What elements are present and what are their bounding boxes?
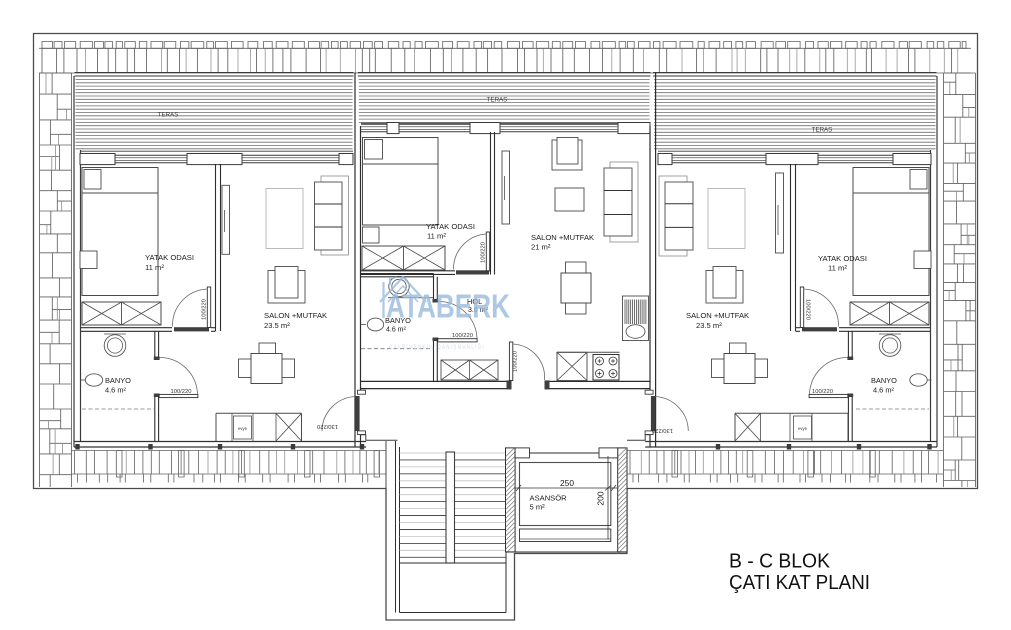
svg-text:SALON +MUTFAK: SALON +MUTFAK — [264, 311, 327, 320]
svg-text:YATAK ODASI: YATAK ODASI — [145, 253, 194, 262]
svg-text:100/220: 100/220 — [452, 333, 473, 339]
svg-text:SALON +MUTFAK: SALON +MUTFAK — [531, 233, 594, 242]
svg-text:4.6 m²: 4.6 m² — [105, 386, 126, 395]
svg-text:4.6 m²: 4.6 m² — [873, 386, 894, 395]
svg-text:ASANSÖR: ASANSÖR — [530, 494, 568, 503]
svg-text:BANYO: BANYO — [871, 376, 897, 385]
svg-text:BANYO: BANYO — [105, 376, 131, 385]
svg-text:130/220: 130/220 — [317, 423, 338, 429]
svg-text:23.5 m²: 23.5 m² — [696, 321, 722, 330]
svg-text:130/220: 130/220 — [652, 427, 673, 433]
svg-text:100/220: 100/220 — [202, 299, 208, 320]
svg-text:YATAK ODASI: YATAK ODASI — [818, 254, 867, 263]
svg-text:100/220: 100/220 — [481, 242, 487, 263]
svg-text:SALON +MUTFAK: SALON +MUTFAK — [686, 311, 749, 320]
svg-text:200: 200 — [596, 491, 606, 505]
svg-text:100/220: 100/220 — [171, 389, 192, 395]
svg-text:100/220: 100/220 — [812, 389, 833, 395]
svg-text:evye: evye — [798, 426, 808, 431]
svg-text:11 m²: 11 m² — [828, 264, 847, 273]
svg-text:evye: evye — [238, 426, 248, 431]
svg-text:5 m²: 5 m² — [530, 503, 546, 512]
svg-text:TERAS: TERAS — [812, 127, 833, 134]
svg-text:4.6 m²: 4.6 m² — [386, 327, 407, 334]
svg-text:100/220: 100/220 — [805, 299, 811, 320]
svg-text:GAYRİMENKUL DANIŞMANLIĞI: GAYRİMENKUL DANIŞMANLIĞI — [389, 344, 485, 351]
svg-text:TERAS: TERAS — [487, 97, 508, 104]
svg-text:11 m²: 11 m² — [145, 263, 164, 272]
svg-text:ÇATI KAT PLANI: ÇATI KAT PLANI — [729, 571, 870, 594]
svg-text:23.5 m²: 23.5 m² — [264, 321, 290, 330]
svg-text:ATABERK: ATABERK — [386, 288, 510, 325]
svg-text:B - C BLOK: B - C BLOK — [729, 550, 830, 573]
svg-text:21 m²: 21 m² — [531, 243, 551, 252]
svg-text:250: 250 — [560, 478, 574, 488]
svg-text:TERAS: TERAS — [158, 112, 179, 119]
svg-text:11 m²: 11 m² — [427, 232, 446, 241]
svg-text:100/220: 100/220 — [513, 351, 519, 372]
svg-text:YATAK ODASI: YATAK ODASI — [426, 222, 475, 231]
